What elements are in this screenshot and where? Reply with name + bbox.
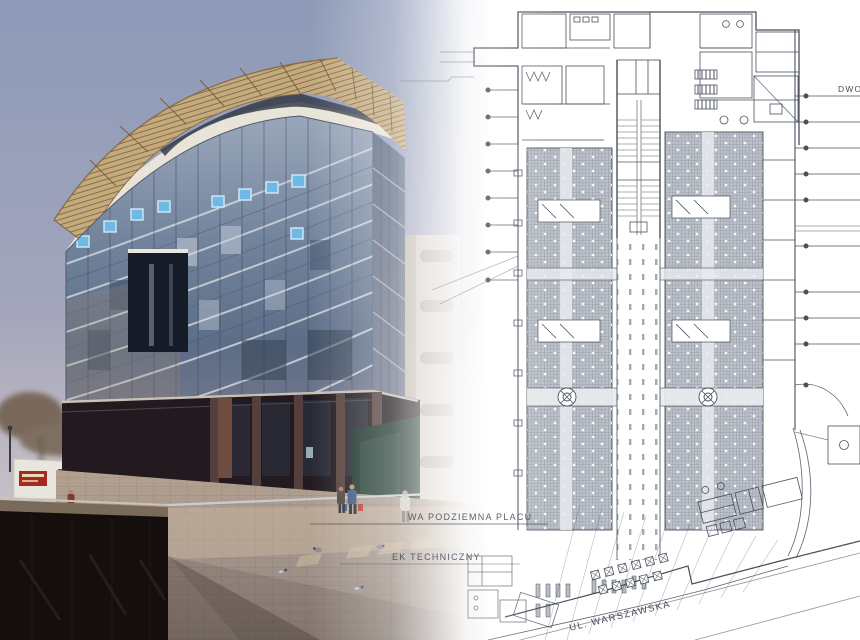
label-technic: EK TECHNICZNY: [392, 552, 481, 562]
granite-parapet: [0, 498, 168, 640]
label-podziemna-placu: WA PODZIEMNA PLACU: [408, 512, 532, 522]
billboard-red-sign: [19, 471, 47, 486]
recessed-loggia: [128, 249, 188, 352]
photo-plan-montage: DWO UL. WARSZAWSKA WA PODZIEMNA PLACU EK…: [0, 0, 860, 640]
label-dworzec: DWO: [838, 84, 860, 94]
plan-hatch-left: [527, 148, 612, 530]
plan-hatch-right: [665, 132, 763, 530]
montage-canvas: DWO UL. WARSZAWSKA WA PODZIEMNA PLACU EK…: [0, 0, 860, 640]
central-walkway: [617, 238, 660, 560]
